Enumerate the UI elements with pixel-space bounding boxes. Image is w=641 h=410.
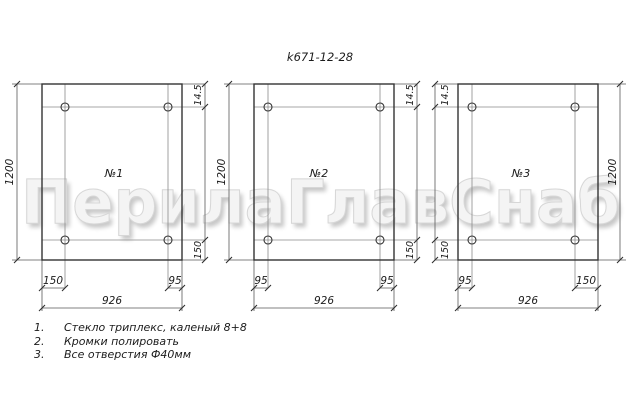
panel-label: №3 [511, 167, 530, 180]
drawing-canvas: ПерилаГлавСнаб k671-12-28 №1 1200 14.5 1… [0, 0, 641, 410]
dim-top-offset: 14.5 [405, 84, 416, 105]
note-text: Все отверстия Ф40мм [64, 348, 191, 361]
dim-bottom-offset: 150 [193, 241, 204, 259]
dim-bottom-offset: 150 [440, 241, 451, 259]
dim-top-offset: 14.5 [193, 84, 204, 105]
dim-width: 926 [314, 295, 334, 307]
notes-list: 1. Стекло триплекс, каленый 8+8 2. Кромк… [34, 321, 247, 361]
construction-lines [254, 84, 417, 288]
dim-height: 1200 [607, 158, 619, 185]
panel-label: №1 [104, 167, 123, 180]
dim-top-offset: 14.5 [440, 84, 451, 105]
note-text: Стекло триплекс, каленый 8+8 [64, 321, 247, 334]
technical-drawing: k671-12-28 №1 1200 14.5 150 150 95 926 [0, 0, 641, 410]
dim-bottom-left: 95 [254, 275, 268, 287]
note-number: 2. [34, 335, 45, 348]
dim-height: 1200 [4, 158, 16, 185]
dim-bottom-right: 150 [576, 275, 596, 287]
note-number: 3. [34, 348, 45, 361]
dim-width: 926 [518, 295, 538, 307]
dim-width: 926 [102, 295, 122, 307]
dim-bottom-left: 95 [458, 275, 472, 287]
dim-height: 1200 [216, 158, 228, 185]
construction-lines [435, 84, 598, 288]
note-text: Кромки полировать [64, 335, 179, 348]
dim-bottom-left: 150 [43, 275, 63, 287]
drawing-title: k671-12-28 [287, 50, 353, 64]
panel-3: №3 1200 14.5 150 95 150 926 [432, 81, 626, 311]
dim-bottom-offset: 150 [405, 241, 416, 259]
panel-label: №2 [309, 167, 328, 180]
dim-bottom-right: 95 [168, 275, 182, 287]
panel-1: №1 1200 14.5 150 150 95 926 [4, 81, 208, 311]
note-number: 1. [34, 321, 45, 334]
construction-lines [42, 84, 205, 288]
panel-2: №2 1200 14.5 150 95 95 926 [216, 81, 420, 311]
dim-bottom-right: 95 [380, 275, 394, 287]
